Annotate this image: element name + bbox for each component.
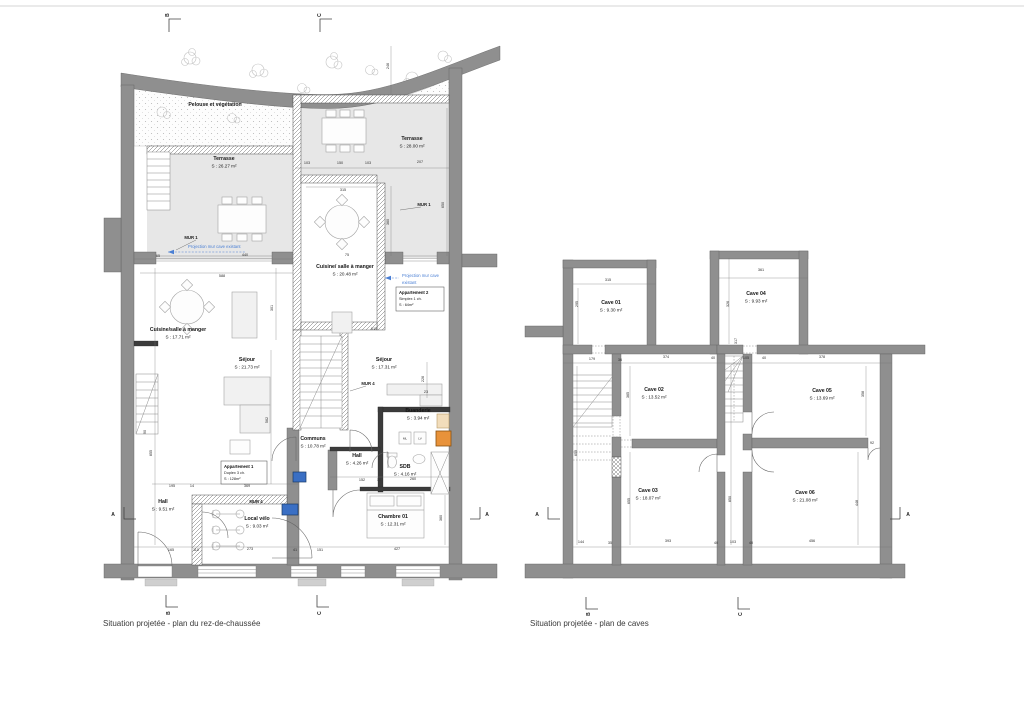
dim-text: 110 [193,548,199,552]
caption-ground-floor: Situation projetée - plan du rez-de-chau… [103,619,261,628]
room-area: S : 13.69 m² [809,396,834,401]
dim-text: 40 [749,541,753,545]
plan-drawing: ML LV [0,0,1024,724]
dim-text: 179 [589,357,595,361]
room-name: Chambre 01 [378,514,408,520]
dim-text: 75 [345,253,349,257]
dim-text: 92 [870,441,874,445]
ground-floor-plan: ML LV [104,13,500,615]
room-area: S : 20.48 m² [332,272,357,277]
dim-text: 374 [663,355,669,359]
section-letter: A [535,512,539,518]
section-letter: C [738,612,744,616]
room-name: Cave 03 [638,488,658,494]
apartment-title: Appartement 1 [224,464,254,469]
dim-text: 103 [304,161,310,165]
room-area: S : 28.00 m² [399,144,424,149]
dim-text: 36 [618,358,622,362]
dim-text: 588 [219,274,225,278]
room-area: S : 18.07 m² [635,496,660,501]
dim-text: 360 [439,515,443,521]
room-name: Cuisine/salle à manger [150,327,206,333]
dim-text: 456 [809,539,815,543]
bay-counter [332,312,352,333]
boiler-box [436,431,451,446]
dim-text: 151 [317,548,323,552]
window [396,566,440,577]
dim-text: 150 [337,161,343,165]
caves-plan: Cave 01S : 9.30 m²Cave 04S : 9.93 m²Cave… [525,251,925,616]
room-name: Cave 01 [601,300,621,306]
sofa-sejour-1 [224,377,270,454]
dim-text: 315 [340,188,346,192]
entry-step [298,579,326,586]
dim-text: 613 [371,327,377,331]
section-letter: A [111,512,115,518]
dim-text: 365 [626,392,630,398]
dim-text: 40 [762,356,766,360]
ml-label: ML [403,437,408,441]
dim-text: 655 [627,498,631,504]
dim-text: 448 [855,500,859,506]
dim-text: 562 [265,417,269,423]
dim-text: 326 [726,301,730,307]
room-name: Communs [300,436,325,442]
terrace-stair [147,152,170,210]
dim-text: 23 [424,390,428,394]
room-name: Cave 04 [746,291,766,297]
dim-text: 195 [169,484,175,488]
room-area: S : 3.94 m² [407,416,430,421]
dim-text: 165 [168,548,174,552]
section-letter: A [906,512,910,518]
room-area: S : 26.27 m² [211,164,236,169]
dim-text: 65 [156,254,160,258]
communs-stair [300,336,342,428]
room-area: S : 10.78 m² [300,444,325,449]
dim-text: 144 [578,540,584,544]
dim-text: 315 [605,278,611,282]
room-name: Séjour [239,357,255,363]
annotation-text: existant [402,280,417,285]
room-name: Local vélo [244,516,269,522]
dim-text: 855 [149,450,153,456]
dim-text: 440 [242,253,248,257]
sofa-sejour-2 [387,384,442,406]
dim-text: 246 [386,63,390,69]
section-letter: C [317,611,323,615]
dim-text: 40 [711,356,715,360]
room-area: S : 12.31 m² [380,522,405,527]
dim-text: 301 [270,305,274,311]
wall-label: MUR 1 [417,202,431,207]
annotation-text: Projection mur cave existant [188,244,241,249]
room-area: S : 17.31 m² [371,365,396,370]
room-name: Cave 02 [644,387,664,393]
dim-text: 317 [734,338,738,344]
room-name: Hall [352,453,362,459]
room-name: Cave 05 [812,388,832,394]
apartment-title: Appartement 2 [399,290,429,295]
room-area: S : 4.26 m² [346,461,369,466]
dim-text: 358 [861,391,865,397]
dim-text: 260 [410,477,416,481]
apartment-area: S : 64m² [399,303,414,307]
dim-text: 103 [730,540,736,544]
dim-text: 659 [574,450,578,456]
dim-text: 10 [377,478,381,482]
entry-step [402,579,434,586]
room-name: Cuisine/ salle à manger [316,264,374,270]
dim-text: 393 [665,539,671,543]
room-area: S : 4.16 m² [394,472,417,477]
duplex-stair [136,374,158,434]
kitchen-island [232,292,257,338]
annotation-text: Projection mur cave [402,273,440,278]
dim-text: 35 [608,541,612,545]
room-name: Séjour [376,357,392,363]
dim-text: 295 [575,301,579,307]
bath-icon [431,452,449,494]
apartment-type: Simplex 1 ch. [399,297,422,301]
room-name: Pelouse et végétation [188,102,241,108]
arrow-icon [385,276,391,280]
caves-center-stair [725,356,743,422]
dim-text: 361 [758,268,764,272]
room-name: SDB [400,464,411,470]
dim-text: 152 [359,478,365,482]
terrace-table-1 [218,197,266,241]
room-area: S : 21.73 m² [234,365,259,370]
wc-icon [387,453,397,468]
terrace-table-2 [322,110,366,152]
room-area: S : 9.93 m² [745,299,768,304]
window [198,566,256,577]
room-area: S : 21.08 m² [792,498,817,503]
apartment-type: Duplex 3 ch. [224,471,245,475]
section-letter: B [586,612,592,616]
dim-text: 41 [293,548,297,552]
apartment-area: S : 128m² [224,477,241,481]
room-name: Hall [158,499,168,505]
room-name: Buanderie [405,408,430,414]
dim-text: 650 [441,202,445,208]
room-area: S : 9.30 m² [600,308,623,313]
dim-text: 90 [143,430,147,434]
window [341,566,365,577]
wall-label: MUR 4 [361,381,375,386]
dim-text: 850 [728,496,732,502]
dim-text: 273 [247,547,253,551]
dim-text: 369 [244,484,250,488]
room-name: Cave 06 [795,490,815,496]
wall-label: MUR 4 [249,499,263,504]
dim-text: 360 [386,219,390,225]
entry-step [145,579,177,586]
room-name: Terrasse [401,136,422,142]
room-name: Terrasse [213,156,234,162]
room-area: S : 9.51 m² [152,507,175,512]
room-area: S : 13.52 m² [641,395,666,400]
tank-box [437,414,449,428]
dim-text: 14 [190,484,194,488]
dim-text: 40 [714,541,718,545]
wall-label: MUR 1 [184,235,198,240]
entrance-opening [138,566,172,577]
section-letter: C [317,13,323,17]
caves-left-stair [573,375,612,460]
dim-text: 103 [365,161,371,165]
section-letter: B [165,13,171,17]
dim-text: 378 [819,355,825,359]
bikes [212,510,244,550]
bay-interior [301,183,377,322]
section-letter: B [166,611,172,615]
drawing-sheet: ML LV [0,0,1024,724]
window [291,566,317,577]
room-area: S : 9.03 m² [246,524,269,529]
section-letter: A [485,512,489,518]
dim-text: 207 [417,160,423,164]
sink-icon [413,455,425,464]
caption-caves: Situation projetée - plan de caves [530,619,649,628]
room-area: S : 17.71 m² [165,335,190,340]
dim-text: 226 [421,376,425,382]
dim-text: 427 [394,547,400,551]
dim-text: 105 [743,356,749,360]
